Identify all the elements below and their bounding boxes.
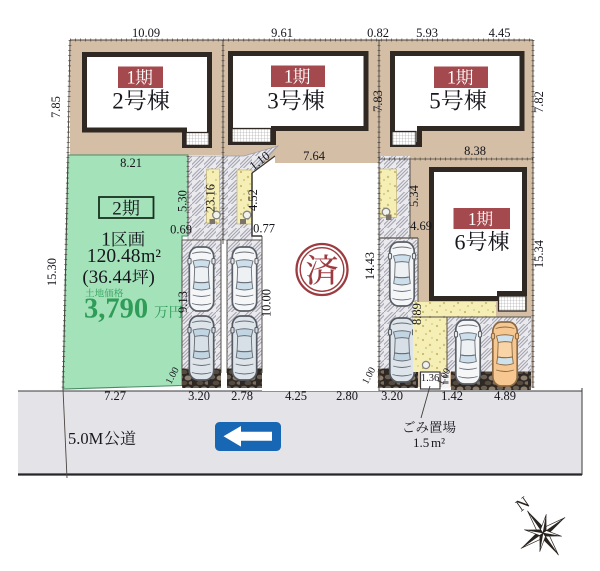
svg-text:N: N	[512, 493, 533, 516]
svg-text:120.48: 120.48	[87, 246, 141, 267]
svg-text:10.09: 10.09	[132, 26, 160, 40]
svg-text:0.77: 0.77	[253, 222, 275, 236]
svg-text:7.83: 7.83	[371, 90, 385, 112]
svg-text:7.64: 7.64	[303, 149, 326, 163]
svg-text:4.45: 4.45	[489, 26, 511, 40]
svg-text:9.13: 9.13	[176, 291, 190, 313]
svg-text:): )	[149, 267, 155, 288]
svg-text:1: 1	[447, 69, 456, 89]
svg-text:0.82: 0.82	[367, 26, 389, 40]
svg-text:3: 3	[267, 89, 279, 114]
svg-text:1: 1	[468, 209, 477, 229]
svg-text:5.0M: 5.0M	[68, 429, 104, 448]
svg-text:3.20: 3.20	[188, 389, 210, 403]
svg-text:7.85: 7.85	[49, 96, 63, 118]
svg-text:2: 2	[112, 89, 124, 114]
svg-text:5.30: 5.30	[176, 190, 190, 212]
svg-text:5: 5	[429, 89, 441, 114]
svg-text:14.43: 14.43	[363, 252, 377, 280]
svg-text:2.78: 2.78	[231, 389, 253, 403]
svg-text:3,790: 3,790	[84, 294, 148, 325]
svg-text:4.25: 4.25	[285, 389, 307, 403]
svg-text:9.61: 9.61	[271, 26, 293, 40]
svg-text:8.89: 8.89	[410, 303, 424, 325]
svg-text:4.52: 4.52	[246, 189, 260, 211]
svg-text:15.30: 15.30	[45, 258, 59, 286]
svg-text:8.38: 8.38	[464, 144, 486, 158]
svg-text:1: 1	[284, 68, 293, 88]
svg-text:23.16: 23.16	[204, 184, 218, 212]
svg-text:5.93: 5.93	[416, 26, 438, 40]
svg-text:1.42: 1.42	[441, 389, 463, 403]
svg-text:1: 1	[126, 69, 135, 89]
svg-text:3.20: 3.20	[381, 389, 403, 403]
svg-text:(36.44: (36.44	[82, 267, 132, 288]
svg-text:0.69: 0.69	[170, 223, 192, 237]
svg-text:4.89: 4.89	[494, 389, 516, 403]
svg-text:2.80: 2.80	[336, 389, 358, 403]
svg-text:6: 6	[455, 229, 466, 254]
svg-text:m²: m²	[431, 435, 445, 450]
svg-text:1.5: 1.5	[413, 435, 429, 450]
svg-text:4.69: 4.69	[410, 219, 432, 233]
svg-text:2: 2	[112, 199, 122, 220]
svg-text:7.27: 7.27	[104, 389, 126, 403]
svg-text:m²: m²	[141, 247, 161, 267]
svg-text:8.21: 8.21	[120, 156, 142, 170]
svg-text:10.00: 10.00	[260, 289, 274, 317]
svg-text:5.34: 5.34	[407, 184, 421, 207]
svg-text:15.34: 15.34	[532, 239, 546, 268]
svg-text:7.82: 7.82	[532, 91, 546, 113]
